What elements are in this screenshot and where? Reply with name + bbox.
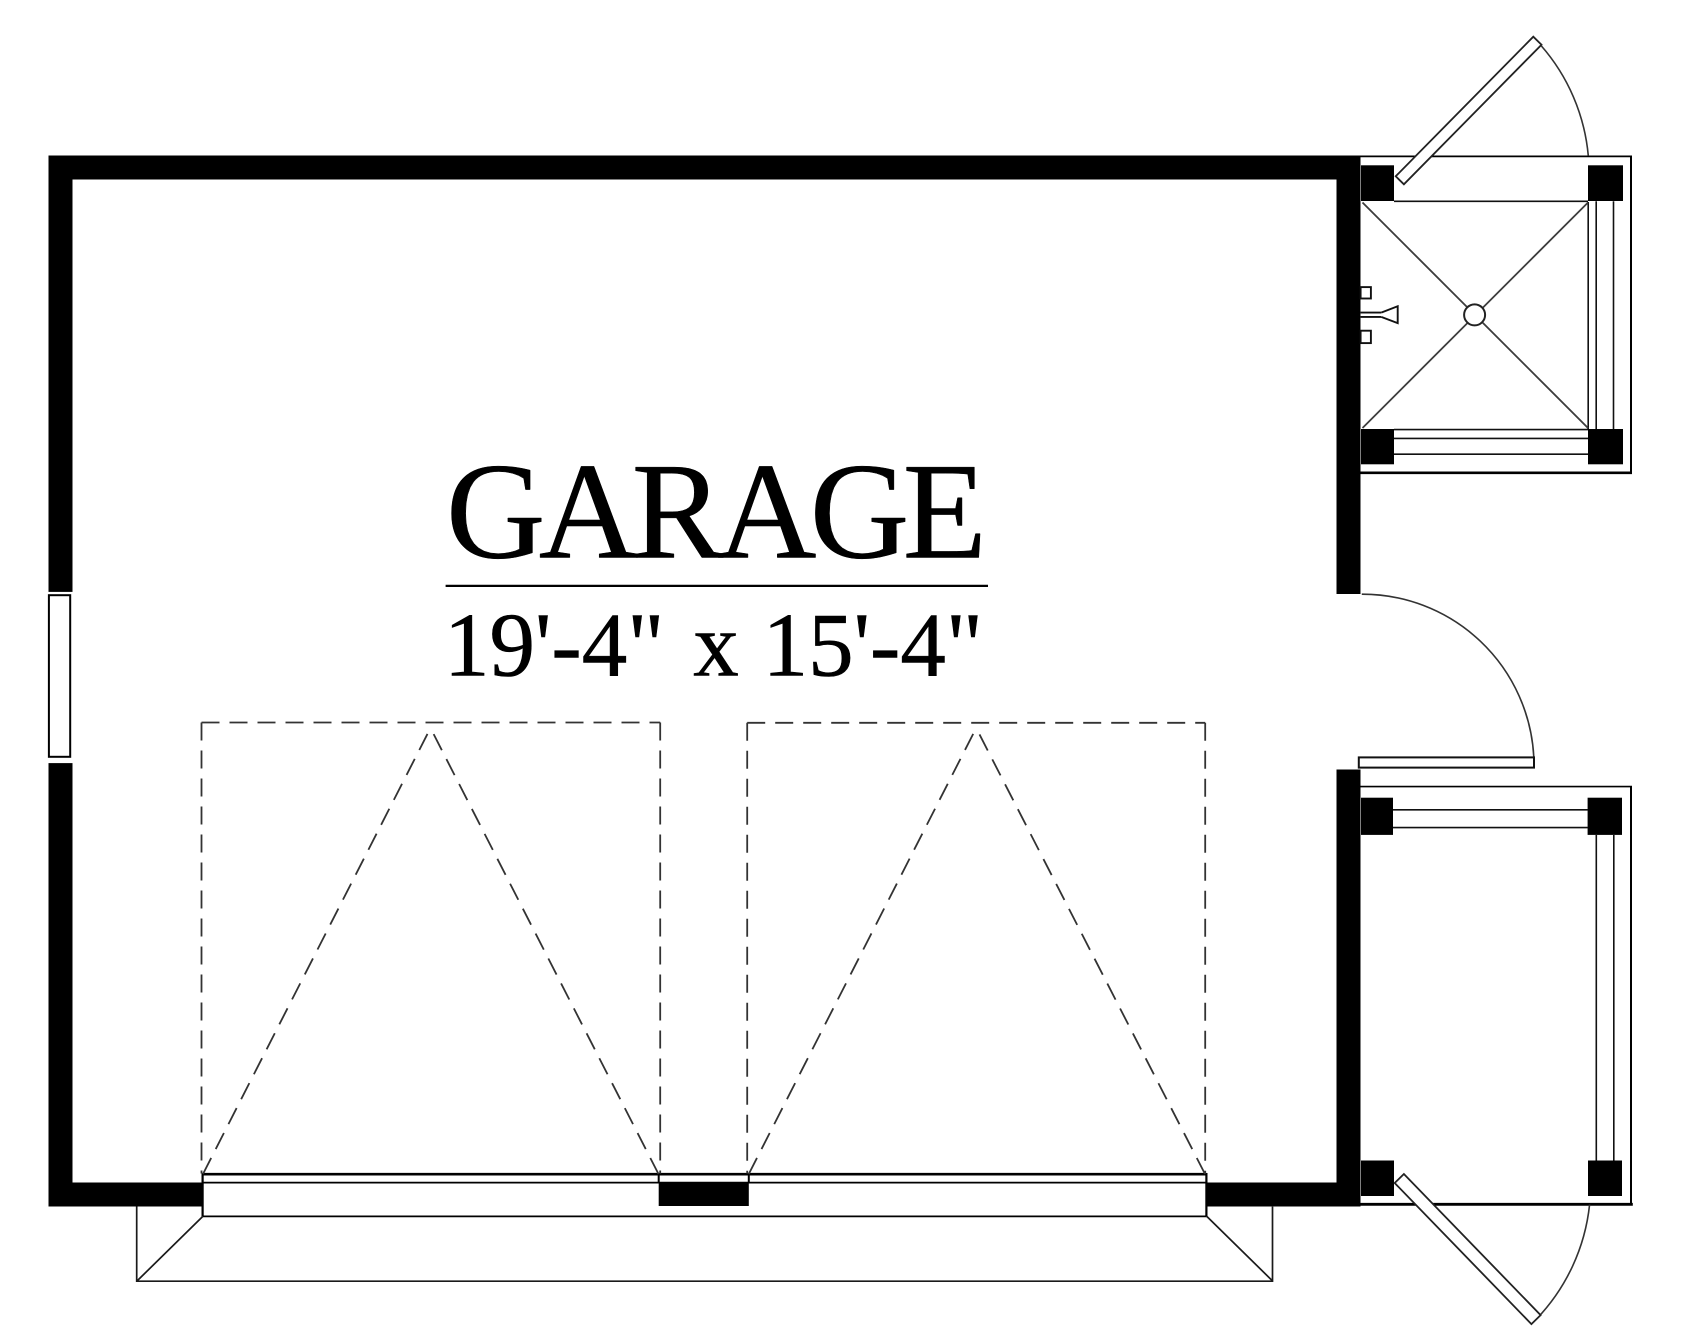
svg-text:GARAGE: GARAGE [446,435,981,588]
svg-text:15'-4": 15'-4" [763,594,983,695]
svg-text:19'-4": 19'-4" [444,594,664,695]
svg-text:x: x [693,594,739,695]
